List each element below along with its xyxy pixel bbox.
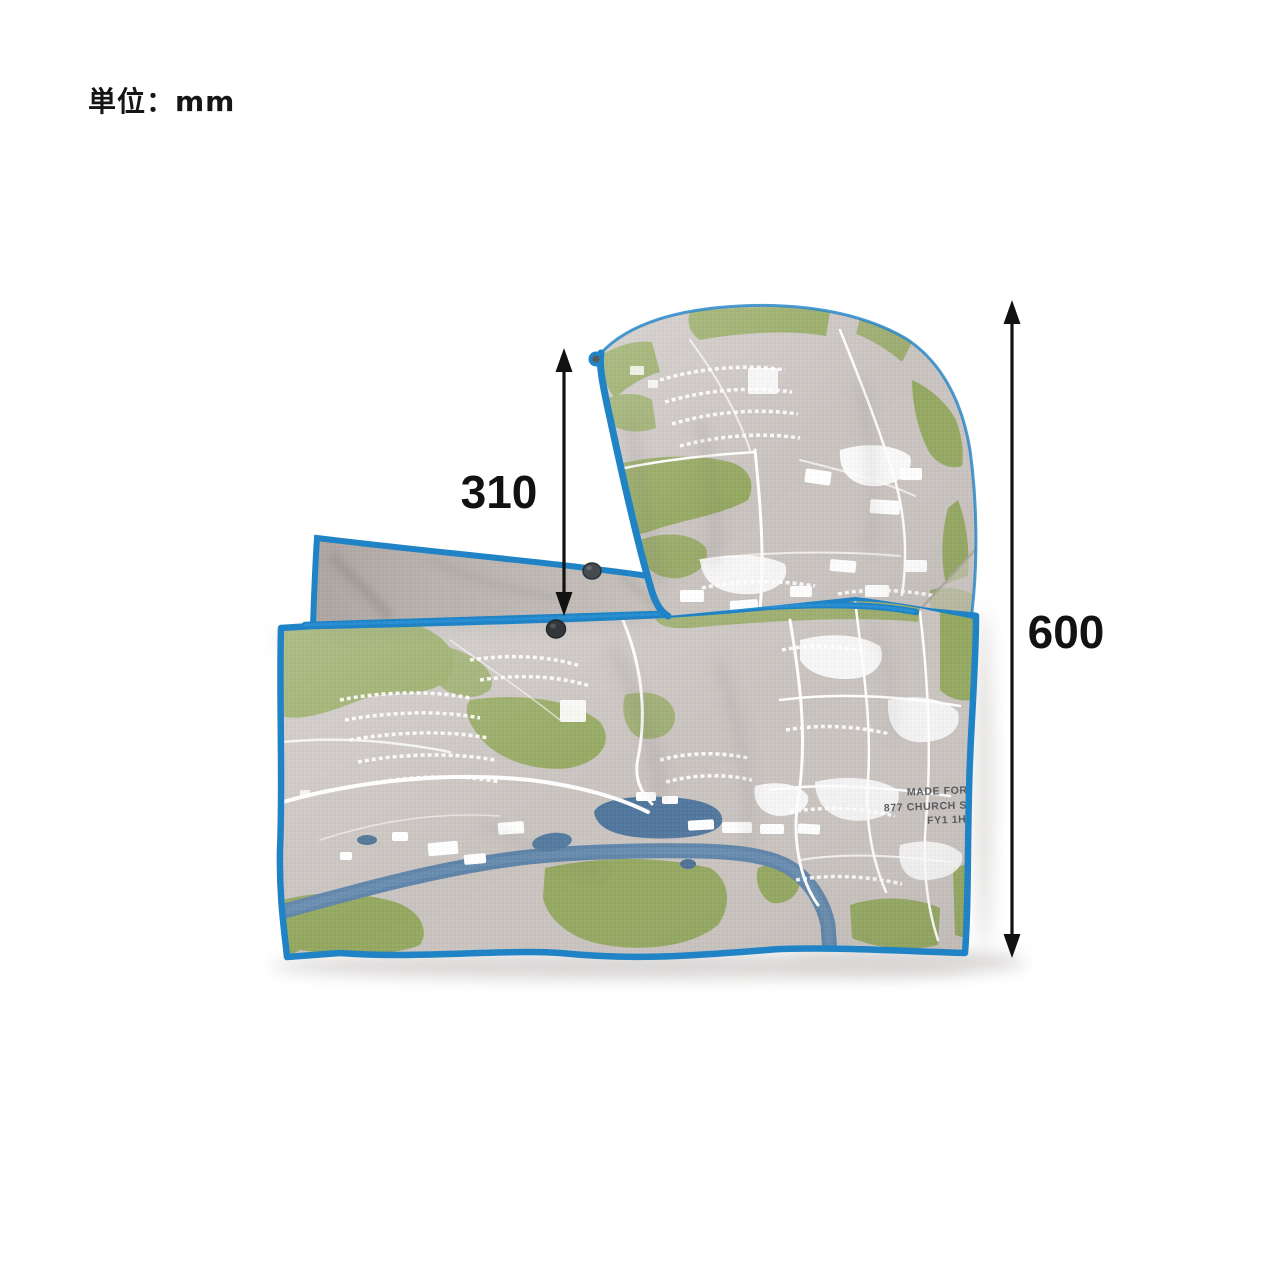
towel-body: MADE FOR PO 877 CHURCH ST. B FY1 1HT E: [270, 590, 990, 970]
product-dimension-diagram: 単位：mm: [0, 0, 1280, 1280]
double-arrow-vertical-600-icon: [1004, 300, 1021, 958]
product-illustration: MADE FOR PO 877 CHURCH ST. B FY1 1HT E: [0, 0, 1280, 1280]
snap-button-top: [583, 563, 601, 579]
dimension-310-label: 310: [461, 466, 538, 518]
dimension-600-label: 600: [1028, 606, 1105, 658]
towel-hood: [590, 295, 990, 635]
snap-button-bottom: [547, 620, 566, 638]
hood-tip-loop: [591, 354, 602, 365]
dimension-600: 600: [1004, 300, 1105, 958]
